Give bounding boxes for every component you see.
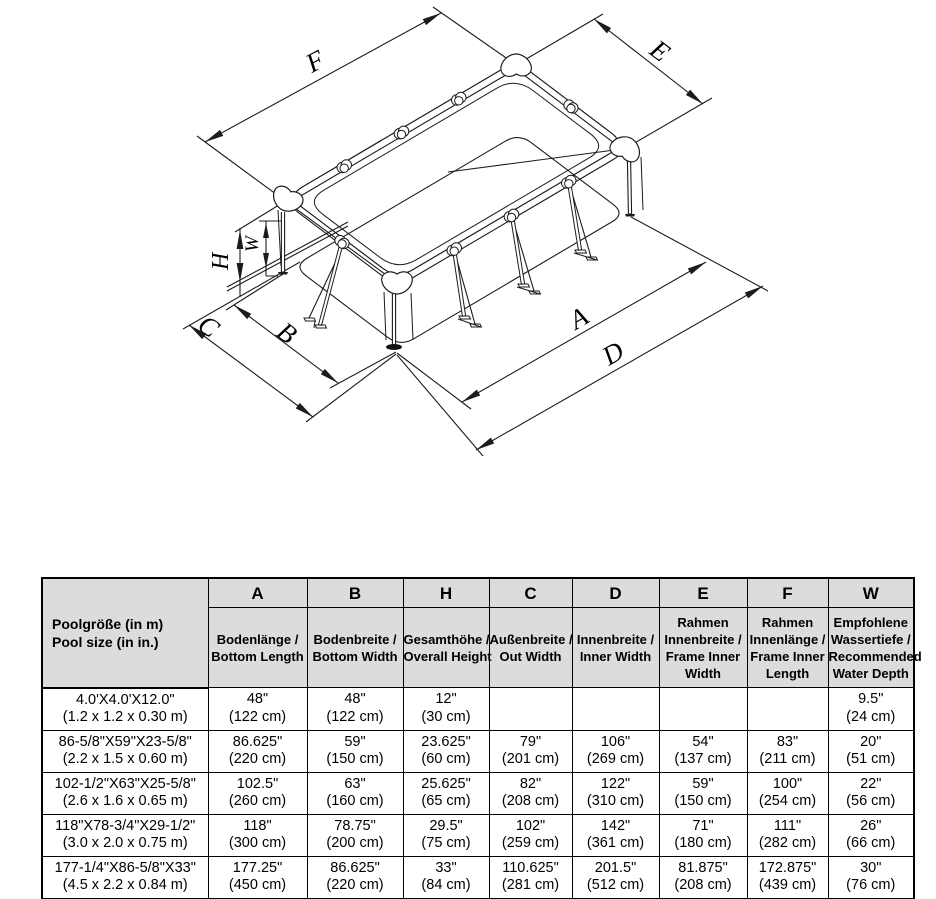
- svg-text:C: C: [192, 309, 225, 344]
- svg-text:E: E: [644, 33, 676, 68]
- svg-text:F: F: [300, 44, 330, 79]
- svg-text:H: H: [208, 251, 234, 271]
- svg-text:B: B: [271, 316, 302, 350]
- svg-text:D: D: [596, 335, 629, 371]
- svg-text:W: W: [242, 234, 263, 252]
- svg-text:A: A: [562, 301, 593, 336]
